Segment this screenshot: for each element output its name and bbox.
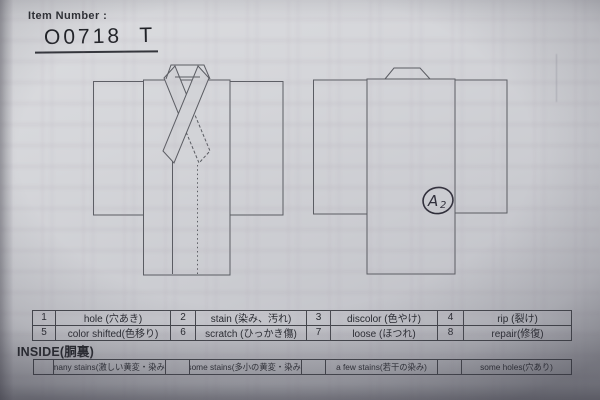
back-collar bbox=[385, 68, 430, 79]
defect-code: 5 bbox=[33, 326, 56, 341]
defect-label: rip (裂け) bbox=[464, 311, 571, 326]
back-body bbox=[367, 79, 455, 274]
inside-label: some holes(穴あり) bbox=[462, 360, 571, 374]
defect-code: 1 bbox=[33, 311, 56, 326]
defect-annotation-a2: A 2 bbox=[421, 185, 455, 216]
front-right-sleeve bbox=[230, 82, 283, 216]
inside-label: a few stains(若干の染み) bbox=[326, 360, 438, 374]
defect-legend-table: 1 hole (穴あき) 2 stain (染み、汚れ) 3 discolor … bbox=[32, 310, 572, 341]
defect-code: 3 bbox=[307, 311, 331, 326]
kimono-front-diagram bbox=[94, 65, 284, 275]
defect-code: 6 bbox=[171, 326, 196, 341]
inside-section-title: INSIDE(胴裏) bbox=[17, 341, 94, 360]
back-left-sleeve bbox=[314, 80, 368, 214]
inside-checkbox-cell bbox=[302, 360, 326, 374]
defect-label: discolor (色やけ) bbox=[331, 311, 438, 326]
inside-label: many stains(激しい黄変・染み) bbox=[54, 360, 166, 374]
defect-label: stain (染み、汚れ) bbox=[196, 311, 307, 326]
inside-checkbox-cell bbox=[438, 360, 462, 374]
front-left-sleeve bbox=[94, 82, 144, 216]
annotation-letter: A bbox=[427, 192, 438, 210]
defect-label: loose (ほつれ) bbox=[331, 326, 438, 341]
defect-code: 4 bbox=[438, 311, 464, 326]
inside-condition-table: many stains(激しい黄変・染み) some stains(多小の黄変・… bbox=[33, 359, 572, 375]
annotation-subscript: 2 bbox=[440, 200, 446, 211]
kimono-back-diagram bbox=[314, 68, 508, 274]
inside-checkbox-cell bbox=[166, 360, 190, 374]
defect-label: repair(修復) bbox=[464, 326, 571, 341]
back-right-sleeve bbox=[455, 80, 507, 213]
defect-code: 2 bbox=[171, 311, 196, 326]
inside-label: some stains(多小の黄変・染み) bbox=[190, 360, 302, 374]
defect-label: color shifted(色移り) bbox=[56, 326, 171, 341]
defect-label: scratch (ひっかき傷) bbox=[196, 326, 307, 341]
inside-checkbox-cell bbox=[34, 360, 54, 374]
defect-code: 7 bbox=[307, 326, 331, 341]
defect-label: hole (穴あき) bbox=[56, 311, 171, 326]
defect-code: 8 bbox=[438, 326, 464, 341]
